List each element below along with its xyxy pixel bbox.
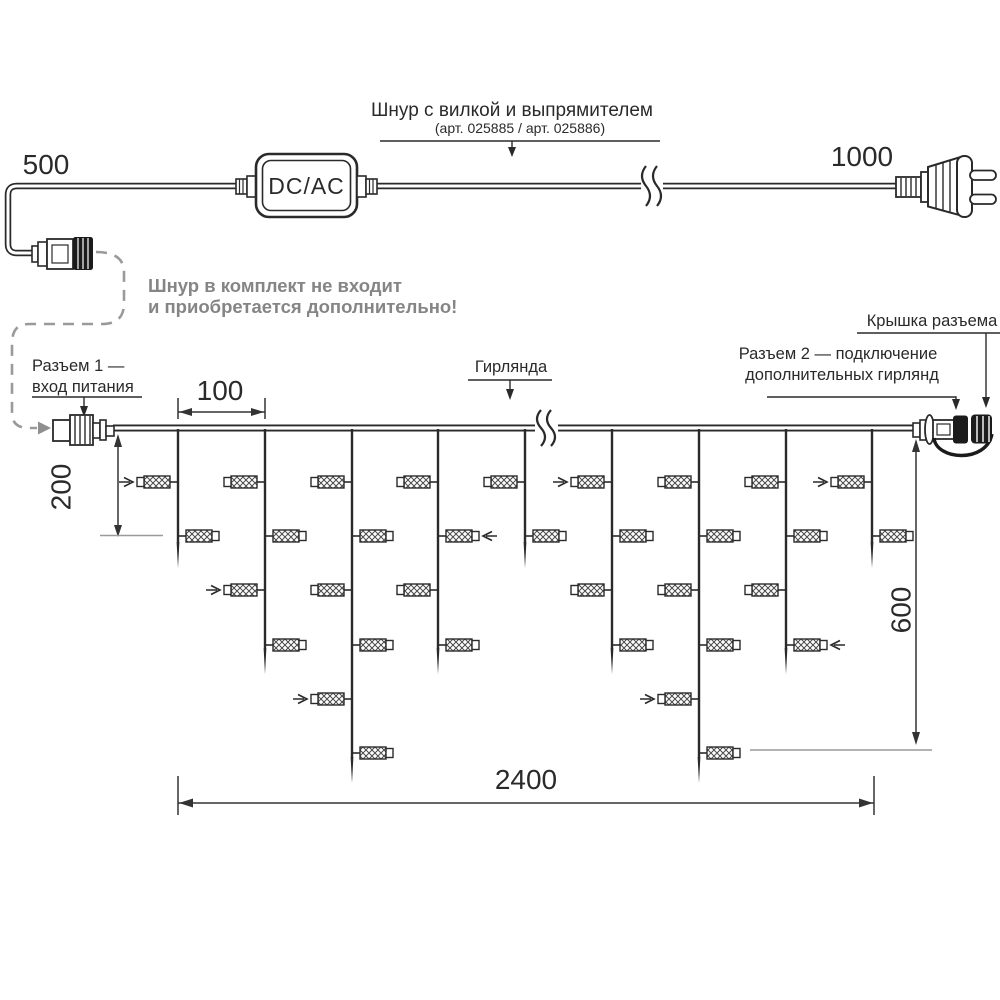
dim-spacing-100: 100 — [178, 375, 265, 419]
drop-tip — [264, 648, 267, 674]
connector2-label-line2: дополнительных гирлянд — [745, 366, 939, 384]
connector-1 — [53, 415, 114, 445]
led-lamp — [311, 693, 352, 705]
led-lamp — [658, 584, 699, 596]
drop-tip — [351, 757, 354, 783]
led-lamp — [397, 476, 438, 488]
cord-callout-title: Шнур с вилкой и выпрямителем — [371, 100, 653, 121]
dim-2400-value: 2400 — [495, 764, 557, 795]
led-lamp — [872, 530, 913, 542]
not-included-note: Шнур в комплект не входит и приобретаетс… — [12, 252, 457, 435]
drop-tip — [437, 648, 440, 674]
dashed-leader-arrow — [38, 422, 51, 435]
led-lamp — [786, 639, 827, 651]
led-lamp — [224, 476, 265, 488]
led-lamp — [699, 639, 740, 651]
dim-200-value: 200 — [46, 464, 77, 511]
lamp-direction-arrow — [483, 532, 497, 541]
cap-label: Крышка разъема — [867, 312, 998, 330]
led-lamp — [525, 530, 566, 542]
led-lamp — [484, 476, 525, 488]
dim-100-value: 100 — [197, 375, 244, 406]
drop-tip — [177, 542, 180, 568]
power-cord-assembly: DC/AC — [8, 100, 996, 270]
icicle-drop-9 — [831, 429, 913, 568]
drop-tip — [785, 648, 788, 674]
drop-tip — [698, 757, 701, 783]
label-garland: Гирлянда — [468, 358, 552, 400]
led-lamp — [699, 747, 740, 759]
led-lamp — [352, 530, 393, 542]
led-lamp — [745, 584, 786, 596]
callout-arrow-down — [508, 147, 516, 157]
led-lamp — [352, 639, 393, 651]
garland-assembly — [53, 410, 992, 456]
lamp-direction-arrow — [831, 641, 845, 650]
led-lamp — [265, 639, 306, 651]
connector2-label-line1: Разъем 2 — подключение — [739, 345, 938, 363]
icicle-drop-3 — [311, 429, 393, 783]
note-line1: Шнур в комплект не входит — [148, 275, 402, 296]
cord-break-icon — [642, 166, 661, 206]
led-lamp — [699, 530, 740, 542]
led-lamp — [745, 476, 786, 488]
dc-ac-converter: DC/AC — [236, 154, 377, 217]
icicle-drop-1 — [137, 429, 219, 568]
led-lamp — [397, 584, 438, 596]
led-lamp — [571, 584, 612, 596]
lamp-direction-arrow — [553, 478, 567, 487]
icicle-drop-4 — [397, 429, 479, 674]
led-lamp — [311, 584, 352, 596]
connector1-label-line1: Разъем 1 — — [32, 357, 125, 375]
icicle-drops-layer — [119, 429, 913, 783]
dc-ac-label: DC/AC — [268, 173, 345, 199]
power-plug-icon — [896, 156, 996, 217]
dim-total-2400: 2400 — [178, 764, 874, 815]
led-lamp — [137, 476, 178, 488]
cord-callout-subtitle: (арт. 025885 / арт. 025886) — [435, 120, 605, 136]
led-lamp — [178, 530, 219, 542]
led-lamp — [438, 639, 479, 651]
cord-left-length-label: 500 — [23, 149, 70, 180]
lamp-direction-arrow — [206, 586, 220, 595]
cord-callout: Шнур с вилкой и выпрямителем (арт. 02588… — [371, 100, 660, 157]
garland-label: Гирлянда — [475, 358, 548, 376]
garland-technical-drawing: DC/AC — [0, 0, 1000, 1000]
icicle-drop-7 — [658, 429, 740, 783]
icicle-drop-5 — [484, 429, 566, 568]
connector-cap-icon — [971, 415, 992, 444]
lamp-direction-arrow — [813, 478, 827, 487]
drop-tip — [611, 648, 614, 674]
led-lamp — [786, 530, 827, 542]
drop-tip — [871, 542, 874, 568]
connector-2 — [913, 415, 992, 456]
led-lamp — [612, 530, 653, 542]
icicle-drop-8 — [745, 429, 827, 674]
cord-end-connector — [32, 237, 93, 270]
diagram-canvas: DC/AC — [0, 0, 1000, 1000]
connector1-label-line2: вход питания — [32, 378, 134, 396]
led-lamp — [438, 530, 479, 542]
lamp-direction-arrow — [119, 478, 133, 487]
led-lamp — [658, 693, 699, 705]
note-line2: и приобретается дополнительно! — [148, 296, 457, 317]
icicle-drop-6 — [571, 429, 653, 674]
led-lamp — [658, 476, 699, 488]
drop-tip — [524, 542, 527, 568]
lamp-direction-arrow — [640, 695, 654, 704]
lamp-direction-arrow — [293, 695, 307, 704]
label-connector1: Разъем 1 — вход питания — [32, 357, 142, 417]
cord-right-length-label: 1000 — [831, 141, 893, 172]
led-lamp — [831, 476, 872, 488]
led-lamp — [612, 639, 653, 651]
dim-600-value: 600 — [886, 587, 917, 634]
led-lamp — [265, 530, 306, 542]
led-lamp — [571, 476, 612, 488]
callout-labels: Разъем 1 — вход питания Гирлянда Разъем … — [32, 312, 1000, 417]
led-lamp — [311, 476, 352, 488]
label-connector2: Разъем 2 — подключение дополнительных ги… — [739, 345, 960, 410]
dashed-leader-line — [12, 252, 124, 428]
icicle-drop-2 — [224, 429, 306, 674]
led-lamp — [352, 747, 393, 759]
led-lamp — [224, 584, 265, 596]
garland-break-icon — [537, 410, 555, 446]
